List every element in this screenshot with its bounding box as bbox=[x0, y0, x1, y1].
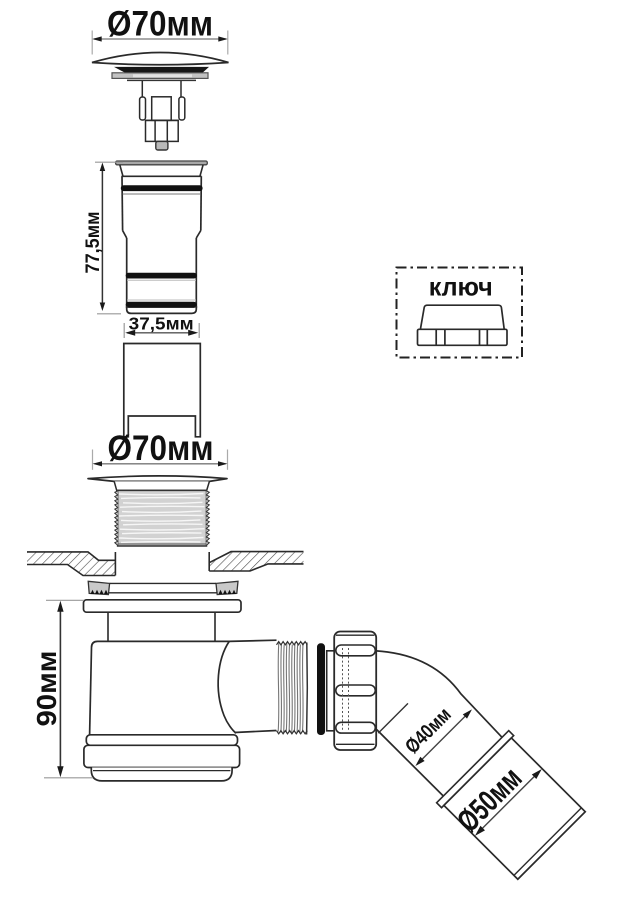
svg-text:37,5мм: 37,5мм bbox=[129, 314, 194, 334]
svg-text:Ø70мм: Ø70мм bbox=[107, 4, 213, 43]
svg-text:77,5мм: 77,5мм bbox=[82, 212, 104, 274]
svg-text:ключ: ключ bbox=[429, 271, 493, 301]
svg-text:Ø40мм: Ø40мм bbox=[401, 704, 455, 758]
svg-text:Ø70мм: Ø70мм bbox=[108, 429, 214, 468]
svg-text:90мм: 90мм bbox=[31, 651, 62, 727]
